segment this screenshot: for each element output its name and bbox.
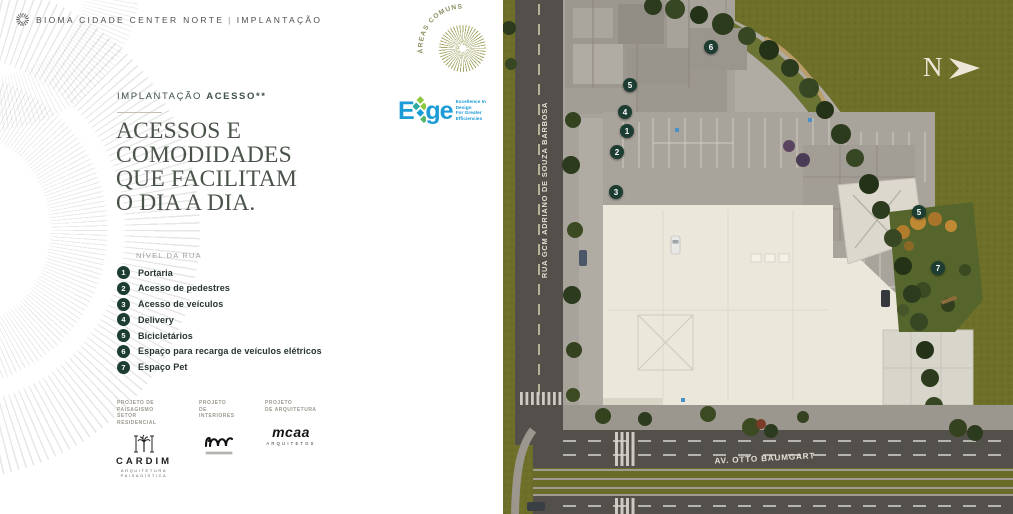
mcaa-logo: mcaa ARQUITETOS <box>265 426 317 446</box>
legend-group-label: NÍVEL DA RUA <box>136 251 202 260</box>
legend-item-portaria: 1Portaria <box>117 266 322 279</box>
credit-interiores: PROJETO DE INTERIORES <box>199 400 243 478</box>
legend-number-badge: 6 <box>117 345 130 358</box>
legend-item-label: Portaria <box>138 268 173 278</box>
page: BIOMA CIDADE CENTER NORTE|IMPLANTAÇÃO ÁR… <box>0 0 1013 514</box>
project-credits: PROJETO DE PAISAGISMO SETOR RESIDENCIAL … <box>117 400 321 478</box>
edge-tagline-line2: For Greater Efficiencies <box>456 111 504 122</box>
compass-north-letter: N <box>923 52 943 82</box>
bottom-sidewalk <box>548 405 1013 430</box>
credit-label: PROJETO DE PAISAGISMO SETOR RESIDENCIAL <box>117 400 177 426</box>
map-marker-7: 7 <box>931 261 945 275</box>
edge-tagline-line1: Excellence In Design <box>456 100 504 111</box>
legend-item-label: Acesso de veículos <box>138 299 223 309</box>
site-plan-map: RUA GCM ADRIANO DE SOUZA BARBOSA AV. OTT… <box>503 0 1013 514</box>
credit-arquitetura: PROJETO DE ARQUITETURA mcaa ARQUITETOS <box>265 400 321 478</box>
map-marker-2: 2 <box>610 145 624 159</box>
map-marker-6: 6 <box>704 40 718 54</box>
map-marker-1: 1 <box>620 124 634 138</box>
legend-item-label: Espaço para recarga de veículos elétrico… <box>138 346 322 356</box>
legend-item-pedestres: 2Acesso de pedestres <box>117 282 322 295</box>
kicker-underline <box>117 112 162 113</box>
edge-word-end: ge <box>425 99 452 123</box>
areas-comuns-seal: ÁREAS COMUNS ENTREGUES EQUIPADAS E DECOR… <box>414 0 511 97</box>
breadcrumb-separator: | <box>228 15 233 25</box>
legend-item-label: Delivery <box>138 315 174 325</box>
seal-circular-text: ÁREAS COMUNS ENTREGUES EQUIPADAS E DECOR… <box>414 0 511 97</box>
svg-text:ÁREAS COMUNS ENTREGUES EQUIPAD: ÁREAS COMUNS ENTREGUES EQUIPADAS E DECOR… <box>414 0 463 54</box>
mcaa-subtext: ARQUITETOS <box>266 441 315 446</box>
brand-name: BIOMA CIDADE CENTER NORTE <box>36 15 224 25</box>
legend-item-veiculos: 3Acesso de veículos <box>117 298 322 311</box>
breadcrumb: BIOMA CIDADE CENTER NORTE|IMPLANTAÇÃO <box>16 13 322 26</box>
credit-paisagismo: PROJETO DE PAISAGISMO SETOR RESIDENCIAL … <box>117 400 177 478</box>
legend-number-badge: 2 <box>117 282 130 295</box>
legend-number-badge: 1 <box>117 266 130 279</box>
legend-number-badge: 3 <box>117 298 130 311</box>
wave-monogram-icon <box>205 432 233 450</box>
legend-item-espaco-pet: 7Espaço Pet <box>117 361 322 374</box>
edge-certification-logo: E ge Excellence In Design For Greater Ef… <box>398 99 508 131</box>
cardim-logo: CARDIM ARQUITETURA PAISAGÍSTICA <box>117 434 171 478</box>
legend-item-recarga-eletricos: 6Espaço para recarga de veículos elétric… <box>117 345 322 358</box>
credit-label-line: SETOR RESIDENCIAL <box>117 413 177 426</box>
legend-item-delivery: 4Delivery <box>117 313 322 326</box>
mcaa-wordmark: mcaa <box>272 426 310 439</box>
edge-diamonds-icon <box>413 95 427 127</box>
cardim-subtext-line: PAISAGÍSTICA <box>121 473 168 478</box>
edge-tagline: Excellence In Design For Greater Efficie… <box>456 100 504 122</box>
street-left-road <box>515 0 563 432</box>
map-marker-5: 5 <box>623 78 637 92</box>
section-name: IMPLANTAÇÃO <box>237 15 323 25</box>
credit-label-line: DE ARQUITETURA <box>265 407 321 414</box>
legend-number-badge: 5 <box>117 329 130 342</box>
page-title-line: ACESSOS E <box>116 119 396 143</box>
legend-number-badge: 4 <box>117 313 130 326</box>
map-marker-5b: 5 <box>912 205 926 219</box>
kicker-bold: ACESSO** <box>206 91 266 102</box>
legend-item-label: Acesso de pedestres <box>138 283 230 293</box>
street-left-label: RUA GCM ADRIANO DE SOUZA BARBOSA <box>540 102 549 278</box>
page-title-line: O DIA A DIA. <box>116 191 396 215</box>
page-title-line: COMODIDADES <box>116 143 396 167</box>
legend-number-badge: 7 <box>117 361 130 374</box>
kicker: IMPLANTAÇÃO ACESSO** <box>117 91 267 102</box>
page-title-line: QUE FACILITAM <box>116 167 396 191</box>
map-marker-4: 4 <box>618 105 632 119</box>
cardim-wordmark: CARDIM <box>116 456 172 467</box>
credit-label-line: DE INTERIORES <box>199 407 243 420</box>
credit-label-line: PROJETO DE PAISAGISMO <box>117 400 177 413</box>
kicker-light: IMPLANTAÇÃO <box>117 91 206 102</box>
site-plan-illustration: RUA GCM ADRIANO DE SOUZA BARBOSA AV. OTT… <box>503 0 1013 514</box>
legend-list: 1Portaria 2Acesso de pedestres 3Acesso d… <box>117 266 322 374</box>
credit-label: PROJETO DE ARQUITETURA <box>265 400 321 414</box>
legend-item-bicicletarios: 5Bicicletários <box>117 329 322 342</box>
edge-word-start: E <box>398 99 414 123</box>
interiores-logo-subtext <box>206 452 232 454</box>
palm-tree-icon <box>133 434 155 454</box>
legend-item-label: Bicicletários <box>138 331 193 341</box>
cardim-subtext: ARQUITETURA PAISAGÍSTICA <box>121 468 168 478</box>
page-title: ACESSOS E COMODIDADES QUE FACILITAM O DI… <box>116 119 396 215</box>
legend-item-label: Espaço Pet <box>138 362 188 372</box>
credit-label: PROJETO DE INTERIORES <box>199 400 243 420</box>
interiores-logo <box>199 432 239 454</box>
brand-starburst-icon <box>16 13 29 26</box>
breadcrumb-text: BIOMA CIDADE CENTER NORTE|IMPLANTAÇÃO <box>36 15 322 25</box>
map-marker-3: 3 <box>609 185 623 199</box>
